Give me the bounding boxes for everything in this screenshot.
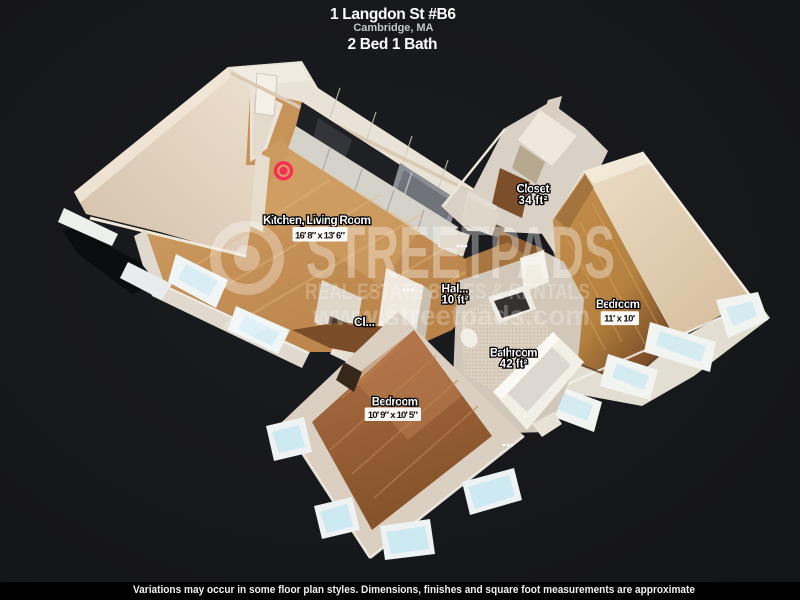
svg-text:2 Bed 1 Bath: 2 Bed 1 Bath: [348, 36, 438, 53]
svg-text:42 ft²: 42 ft²: [500, 358, 528, 370]
svg-text:11′ x 10′: 11′ x 10′: [604, 313, 636, 324]
svg-text:34 ft²: 34 ft²: [519, 195, 548, 207]
svg-text:Bedroom: Bedroom: [372, 396, 418, 408]
svg-text:Kitchen, Living Room: Kitchen, Living Room: [263, 213, 371, 227]
svg-text:Hal...: Hal...: [442, 281, 469, 295]
svg-text:Cambridge, MA: Cambridge, MA: [353, 22, 433, 34]
svg-text:Cl...: Cl...: [354, 315, 375, 329]
svg-text:16′ 8″ x 13′ 6″: 16′ 8″ x 13′ 6″: [295, 230, 345, 241]
svg-text:Closet: Closet: [517, 182, 550, 196]
svg-text:1 Langdon St #B6: 1 Langdon St #B6: [330, 6, 456, 23]
svg-text:Variations may occur in some f: Variations may occur in some floor plan …: [133, 584, 695, 596]
svg-text:10 ft²: 10 ft²: [442, 295, 469, 307]
svg-text:10′ 9″ x 10′ 5″: 10′ 9″ x 10′ 5″: [368, 410, 418, 421]
svg-text:Bedroom: Bedroom: [596, 299, 640, 311]
